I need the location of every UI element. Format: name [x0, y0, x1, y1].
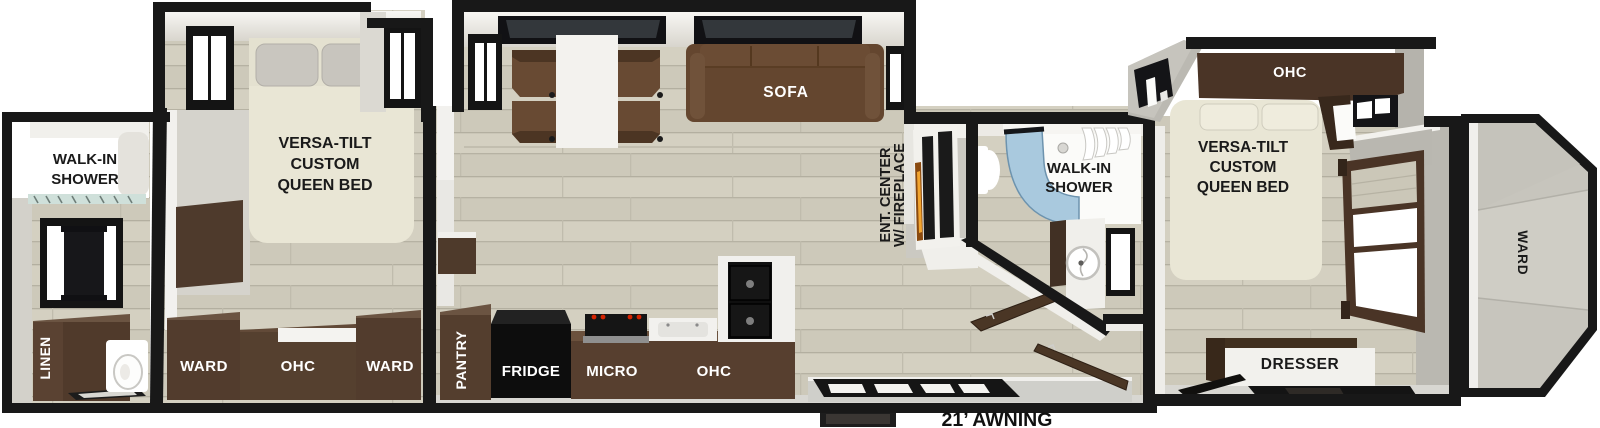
svg-text:OHC: OHC: [281, 358, 316, 375]
svg-text:LINEN: LINEN: [38, 337, 53, 380]
svg-text:OHC: OHC: [1273, 65, 1307, 81]
svg-text:QUEEN BED: QUEEN BED: [1197, 179, 1289, 196]
svg-text:21’ AWNING: 21’ AWNING: [942, 409, 1053, 428]
svg-text:PANTRY: PANTRY: [453, 330, 469, 389]
svg-text:CUSTOM: CUSTOM: [1210, 159, 1277, 176]
svg-text:WARD: WARD: [366, 358, 414, 375]
svg-text:VERSA-TILT: VERSA-TILT: [278, 135, 371, 152]
svg-text:W/ FIREPLACE: W/ FIREPLACE: [892, 143, 908, 247]
svg-text:SHOWER: SHOWER: [51, 171, 119, 188]
svg-text:QUEEN BED: QUEEN BED: [277, 177, 372, 194]
svg-text:SOFA: SOFA: [763, 84, 808, 101]
svg-text:OHC: OHC: [697, 363, 732, 380]
svg-text:WALK-IN: WALK-IN: [1047, 160, 1111, 177]
svg-text:WARD: WARD: [180, 358, 228, 375]
svg-text:VERSA-TILT: VERSA-TILT: [1198, 139, 1289, 156]
svg-text:MICRO: MICRO: [586, 363, 638, 380]
svg-text:WARD: WARD: [1515, 230, 1530, 275]
svg-text:WALK-IN: WALK-IN: [53, 151, 117, 168]
svg-text:CUSTOM: CUSTOM: [290, 156, 359, 173]
svg-text:FRIDGE: FRIDGE: [502, 363, 560, 380]
svg-text:DRESSER: DRESSER: [1261, 356, 1339, 373]
svg-text:SHOWER: SHOWER: [1045, 179, 1113, 196]
